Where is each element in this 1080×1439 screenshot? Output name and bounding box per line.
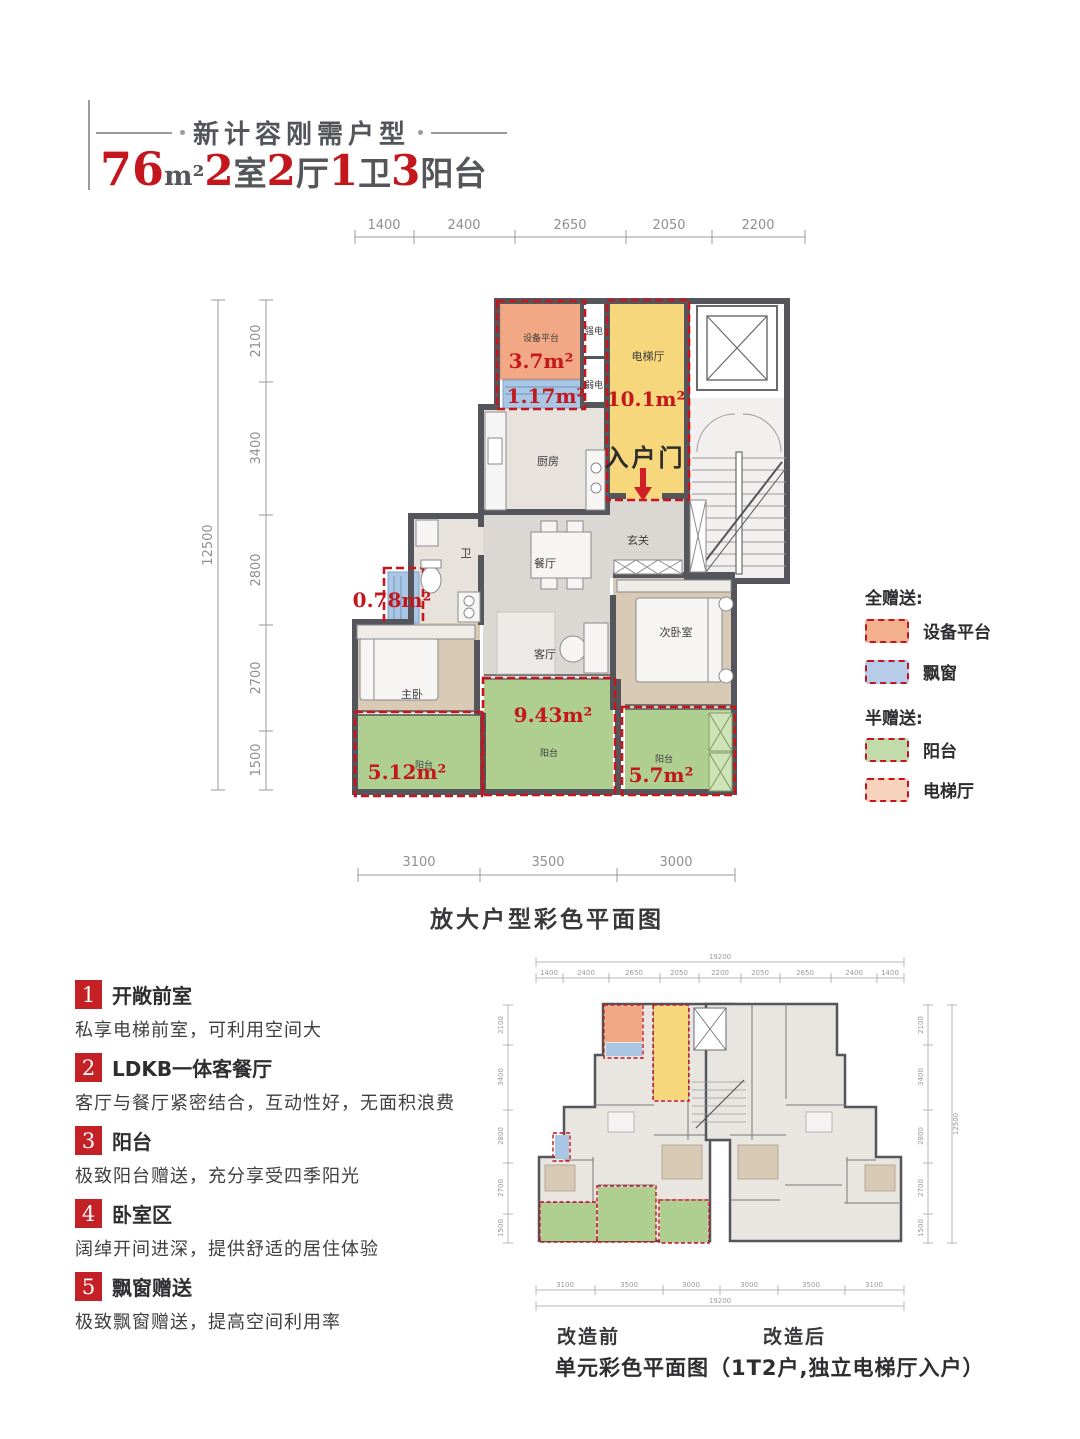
bath-label: 卫 <box>461 547 472 560</box>
legend-label: 飘窗 <box>923 659 957 684</box>
area-elevator-hall: 10.1m² <box>607 387 686 411</box>
dim-label: 3000 <box>740 1281 758 1289</box>
main-plan: 1400 2400 2650 2050 2200 12500 2100 3400… <box>201 218 805 882</box>
dim-label: 3100 <box>865 1281 883 1289</box>
dim-label: 2050 <box>751 969 769 977</box>
dim-label: 2700 <box>497 1179 505 1197</box>
legend-swatch-equipment <box>865 619 909 643</box>
after-label: 改造后 <box>763 1322 826 1349</box>
master-label: 主卧 <box>401 688 423 701</box>
feature-head: 3 阳台 <box>75 1126 495 1155</box>
feature-desc: 阔绰开间进深，提供舒适的居住体验 <box>75 1235 495 1261</box>
feature-number-badge: 5 <box>75 1272 102 1301</box>
equipment-label: 设备平台 <box>523 332 559 344</box>
legend-item: 电梯厅 <box>865 777 991 802</box>
dim-label: 1500 <box>917 1219 925 1237</box>
area-equipment: 3.7m² <box>509 349 574 373</box>
feature-number-badge: 3 <box>75 1126 102 1155</box>
area-balcony-right: 5.7m² <box>629 763 694 787</box>
dim-label: 2650 <box>553 218 586 233</box>
dim-label: 1500 <box>249 743 264 776</box>
spec-num: 2 <box>204 146 233 195</box>
tagline-line-left <box>96 132 172 134</box>
feature-head: 2 LDKB一体客餐厅 <box>75 1053 495 1082</box>
dim-label: 3000 <box>659 855 692 870</box>
main-dim-left <box>211 300 273 790</box>
dim-label: 1400 <box>881 969 899 977</box>
dim-label: 2100 <box>917 1016 925 1034</box>
feature-head: 4 卧室区 <box>75 1199 495 1228</box>
unit-dim-left <box>503 1005 513 1243</box>
main-dim-bottom <box>358 868 735 882</box>
feature-title: 卧室区 <box>112 1199 172 1228</box>
weak-elec-label: 弱电 <box>585 379 603 391</box>
spec-unit: m² <box>164 161 204 192</box>
kitchen-label: 厨房 <box>537 455 559 468</box>
legend-item: 飘窗 <box>865 659 991 684</box>
dim-label: 3100 <box>402 855 435 870</box>
dim-label: 3000 <box>682 1281 700 1289</box>
dim-label: 2700 <box>249 661 264 694</box>
feature-desc: 私享电梯前室，可利用空间大 <box>75 1016 495 1042</box>
dim-label: 2050 <box>652 218 685 233</box>
dim-label: 2650 <box>796 969 814 977</box>
dim-label: 2800 <box>917 1127 925 1145</box>
spec-unit: 卫 <box>358 154 391 193</box>
main-plan-caption: 放大户型彩色平面图 <box>430 900 664 934</box>
legend-label: 阳台 <box>923 737 957 762</box>
dim-label: 3400 <box>249 431 264 464</box>
feature-item-5: 5 飘窗赠送 极致飘窗赠送，提高空间利用率 <box>75 1272 495 1334</box>
tagline-dot-right <box>418 130 423 135</box>
dim-label: 3400 <box>917 1068 925 1086</box>
feature-item-1: 1 开敞前室 私享电梯前室，可利用空间大 <box>75 980 495 1042</box>
feature-desc: 极致飘窗赠送，提高空间利用率 <box>75 1308 495 1334</box>
foyer-label: 玄关 <box>627 533 649 547</box>
spec-num: 3 <box>391 146 420 195</box>
living-label: 客厅 <box>534 647 556 661</box>
strong-elec-label: 强电 <box>585 325 603 337</box>
unit-spec: 76m²2室2厅1卫3阳台 <box>100 142 486 196</box>
header-accent-line <box>88 100 90 190</box>
unit-plan: 19200 1400 2400 2650 2050 2200 2050 2650… <box>497 953 960 1311</box>
dim-label: 2400 <box>447 218 480 233</box>
feature-item-3: 3 阳台 极致阳台赠送，充分享受四季阳光 <box>75 1126 495 1188</box>
elevator-shaft <box>697 306 777 390</box>
feature-number-badge: 4 <box>75 1199 102 1228</box>
dim-label: 12500 <box>201 524 216 565</box>
dim-label: 2050 <box>670 969 688 977</box>
dim-label: 3100 <box>556 1281 574 1289</box>
dim-label: 2200 <box>711 969 729 977</box>
legend-label: 电梯厅 <box>923 777 974 802</box>
area-balcony-mid: 9.43m² <box>514 703 593 727</box>
balcony-mid-zone <box>484 680 613 794</box>
feature-title: 开敞前室 <box>112 980 192 1009</box>
dim-label: 2400 <box>577 969 595 977</box>
dim-label: 12500 <box>952 1113 960 1135</box>
legend-full-title: 全赠送: <box>865 584 991 609</box>
entry-door-label: 入户门 <box>605 444 686 472</box>
dim-label: 3500 <box>802 1281 820 1289</box>
spec-num: 76 <box>100 142 164 196</box>
area-bay2: 0.78m² <box>353 588 432 612</box>
dim-label: 3400 <box>497 1068 505 1086</box>
dim-label: 1400 <box>540 969 558 977</box>
feature-head: 5 飘窗赠送 <box>75 1272 495 1301</box>
dim-label: 3500 <box>531 855 564 870</box>
area-bay1: 1.17m² <box>507 384 586 408</box>
dim-label: 2400 <box>845 969 863 977</box>
dim-label: 19200 <box>709 1297 731 1305</box>
dim-label: 2200 <box>741 218 774 233</box>
balcony-mid-label: 阳台 <box>540 747 558 759</box>
legend-half-title: 半赠送: <box>865 704 991 729</box>
dim-label: 1500 <box>497 1219 505 1237</box>
unit-outline-right <box>706 1004 901 1241</box>
area-balcony-left: 5.12m² <box>368 760 447 784</box>
dim-label: 2100 <box>497 1016 505 1034</box>
dim-label: 1400 <box>367 218 400 233</box>
dim-label: 3500 <box>620 1281 638 1289</box>
spec-unit: 阳台 <box>420 154 486 193</box>
spec-unit: 室 <box>234 154 267 193</box>
spec-unit: 厅 <box>296 154 329 193</box>
legend-label: 设备平台 <box>923 618 991 643</box>
legend-swatch-balcony <box>865 738 909 762</box>
dim-label: 2100 <box>249 324 264 357</box>
dim-label: 2650 <box>625 969 643 977</box>
feature-title: 飘窗赠送 <box>112 1272 192 1301</box>
elevator-hall-label: 电梯厅 <box>632 350 665 363</box>
spec-num: 2 <box>267 146 296 195</box>
tagline-dot-left <box>180 130 185 135</box>
legend-swatch-elevator-hall <box>865 778 909 802</box>
feature-desc: 极致阳台赠送，充分享受四季阳光 <box>75 1162 495 1188</box>
dim-label: 2800 <box>249 553 264 586</box>
legend-item: 设备平台 <box>865 618 991 643</box>
poster-page: 1400 2400 2650 2050 2200 12500 2100 3400… <box>0 0 1080 1439</box>
feature-title: 阳台 <box>112 1126 152 1155</box>
dim-label: 19200 <box>709 953 731 961</box>
legend: 全赠送: 设备平台 飘窗 半赠送: 阳台 电梯厅 <box>865 584 991 802</box>
feature-head: 1 开敞前室 <box>75 980 495 1009</box>
dim-label: 2700 <box>917 1179 925 1197</box>
before-label: 改造前 <box>557 1322 620 1349</box>
bedroom2-label: 次卧室 <box>660 625 693 639</box>
feature-title: LDKB一体客餐厅 <box>112 1053 272 1082</box>
dining-label: 餐厅 <box>534 556 556 570</box>
legend-item: 阳台 <box>865 737 991 762</box>
feature-desc: 客厅与餐厅紧密结合，互动性好，无面积浪费 <box>75 1089 495 1115</box>
feature-number-badge: 1 <box>75 980 102 1009</box>
tagline-line-right <box>431 132 507 134</box>
feature-item-2: 2 LDKB一体客餐厅 客厅与餐厅紧密结合，互动性好，无面积浪费 <box>75 1053 495 1115</box>
spec-num: 1 <box>329 146 358 195</box>
legend-swatch-bay-window <box>865 660 909 684</box>
feature-number-badge: 2 <box>75 1053 102 1082</box>
unit-plan-caption: 单元彩色平面图（1T2户,独立电梯厅入户） <box>555 1352 985 1382</box>
dim-label: 2800 <box>497 1127 505 1145</box>
feature-item-4: 4 卧室区 阔绰开间进深，提供舒适的居住体验 <box>75 1199 495 1261</box>
